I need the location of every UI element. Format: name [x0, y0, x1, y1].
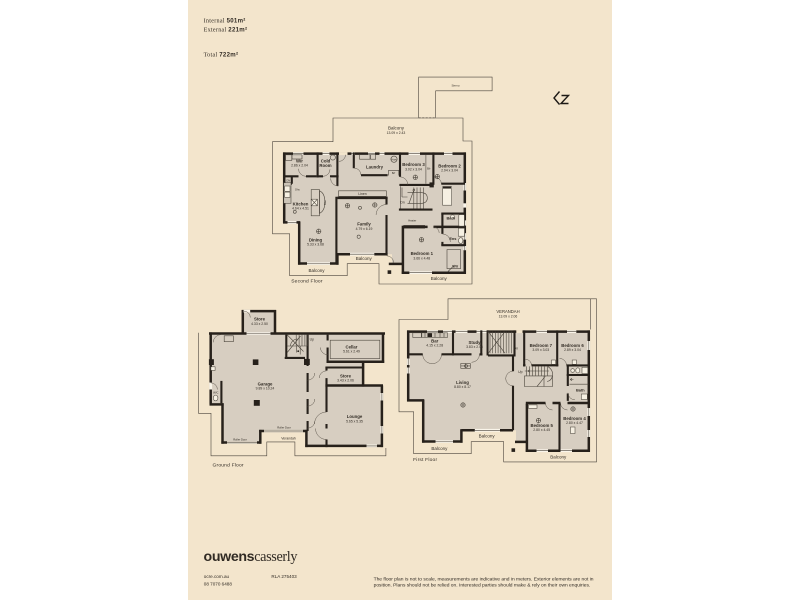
- svg-text:Heater: Heater: [408, 219, 416, 223]
- svg-text:Second Floor: Second Floor: [291, 278, 323, 284]
- svg-text:ouwenscasserly: ouwenscasserly: [204, 549, 299, 565]
- svg-text:5.65 x 5.35: 5.65 x 5.35: [346, 419, 363, 423]
- svg-text:Bedroom 1: Bedroom 1: [411, 251, 434, 256]
- svg-text:4.64 x 4.51: 4.64 x 4.51: [292, 207, 309, 211]
- svg-text:B/er: B/er: [323, 200, 327, 205]
- svg-text:W/C: W/C: [213, 390, 218, 394]
- svg-text:Lounge: Lounge: [347, 414, 363, 419]
- svg-text:Family: Family: [357, 222, 371, 227]
- svg-text:Dn: Dn: [400, 200, 404, 204]
- svg-text:4.79 x 6.19: 4.79 x 6.19: [356, 227, 373, 231]
- svg-text:Bath: Bath: [576, 388, 585, 393]
- svg-text:3.83 x 2.06: 3.83 x 2.06: [466, 345, 483, 349]
- svg-text:Ground Floor: Ground Floor: [213, 462, 244, 468]
- svg-text:5.33 x 3.68: 5.33 x 3.68: [307, 243, 324, 247]
- svg-text:08 7070 6488: 08 7070 6488: [204, 581, 233, 586]
- svg-text:13.09 x 2.43: 13.09 x 2.43: [387, 131, 406, 135]
- svg-text:Balcony: Balcony: [550, 455, 567, 460]
- svg-text:Balcony: Balcony: [431, 276, 448, 281]
- svg-text:position. Plans should not be: position. Plans should not be relied on.…: [374, 582, 591, 588]
- svg-text:VERANDAH: VERANDAH: [496, 309, 519, 314]
- svg-text:9.89 x 10.24: 9.89 x 10.24: [256, 387, 275, 391]
- svg-text:2.80 x 4.47: 2.80 x 4.47: [566, 421, 583, 425]
- svg-text:The floor plan is not to scale: The floor plan is not to scale, measurem…: [374, 576, 594, 582]
- svg-text:2.89 x 3.04: 2.89 x 3.04: [564, 348, 581, 352]
- svg-text:Servo: Servo: [451, 83, 459, 87]
- svg-text:Dining: Dining: [309, 237, 323, 242]
- svg-text:2.86 x 2.04: 2.86 x 2.04: [291, 164, 308, 168]
- svg-text:Linen: Linen: [358, 192, 366, 196]
- svg-text:3.43 x 2.06: 3.43 x 2.06: [337, 378, 354, 382]
- svg-text:Laundry: Laundry: [366, 164, 384, 169]
- svg-text:3.66 x 4.48: 3.66 x 4.48: [413, 256, 430, 260]
- svg-text:2.94 x 3.04: 2.94 x 3.04: [441, 169, 458, 173]
- svg-text:13.09 x 2.06: 13.09 x 2.06: [499, 314, 518, 318]
- svg-text:Total 722m²: Total 722m²: [204, 51, 239, 58]
- svg-text:B/r: B/r: [392, 171, 396, 175]
- svg-text:Roller Door: Roller Door: [277, 425, 291, 429]
- svg-text:Internal 501m²: Internal 501m²: [204, 17, 246, 24]
- svg-text:4.33 x 2.50: 4.33 x 2.50: [251, 322, 268, 326]
- svg-text:RLA 275403: RLA 275403: [271, 574, 297, 579]
- svg-text:Wir: Wir: [452, 264, 458, 268]
- svg-text:3.09 x 3.03: 3.09 x 3.03: [532, 348, 549, 352]
- svg-text:B/r: B/r: [427, 166, 431, 170]
- svg-text:Roller Door: Roller Door: [233, 437, 247, 441]
- svg-text:4.15 x 2.28: 4.15 x 2.28: [426, 343, 443, 347]
- svg-text:Balcony: Balcony: [308, 268, 325, 273]
- svg-text:Up: Up: [518, 370, 522, 374]
- svg-text:Bedroom 2: Bedroom 2: [438, 163, 461, 168]
- svg-text:Balcony: Balcony: [356, 256, 373, 261]
- svg-text:Bedroom 3: Bedroom 3: [402, 162, 425, 167]
- svg-text:8.80 x 8.17: 8.80 x 8.17: [454, 385, 471, 389]
- svg-text:Balcony: Balcony: [388, 126, 405, 131]
- svg-text:O/w: O/w: [295, 187, 300, 191]
- svg-text:DN: DN: [286, 178, 290, 182]
- svg-text:Ens: Ens: [449, 236, 456, 241]
- svg-text:Room: Room: [319, 163, 331, 168]
- svg-text:2.80 x 4.45: 2.80 x 4.45: [533, 428, 550, 432]
- svg-text:First Floor: First Floor: [413, 457, 437, 463]
- svg-text:Balcony: Balcony: [479, 434, 496, 439]
- svg-text:Verandah: Verandah: [281, 437, 296, 441]
- svg-text:Hws: Hws: [391, 157, 397, 161]
- svg-text:ocre.com.au: ocre.com.au: [204, 574, 230, 579]
- svg-text:5.61 x 2.49: 5.61 x 2.49: [343, 349, 360, 353]
- svg-text:Up: Up: [310, 337, 314, 341]
- svg-text:External 221m²: External 221m²: [204, 26, 248, 33]
- svg-text:3.02 x 3.04: 3.02 x 3.04: [405, 167, 422, 171]
- svg-text:Dn: Dn: [514, 347, 518, 351]
- svg-text:Balcony: Balcony: [431, 446, 448, 451]
- svg-text:Bath: Bath: [446, 216, 455, 221]
- svg-text:Store: Store: [254, 317, 266, 322]
